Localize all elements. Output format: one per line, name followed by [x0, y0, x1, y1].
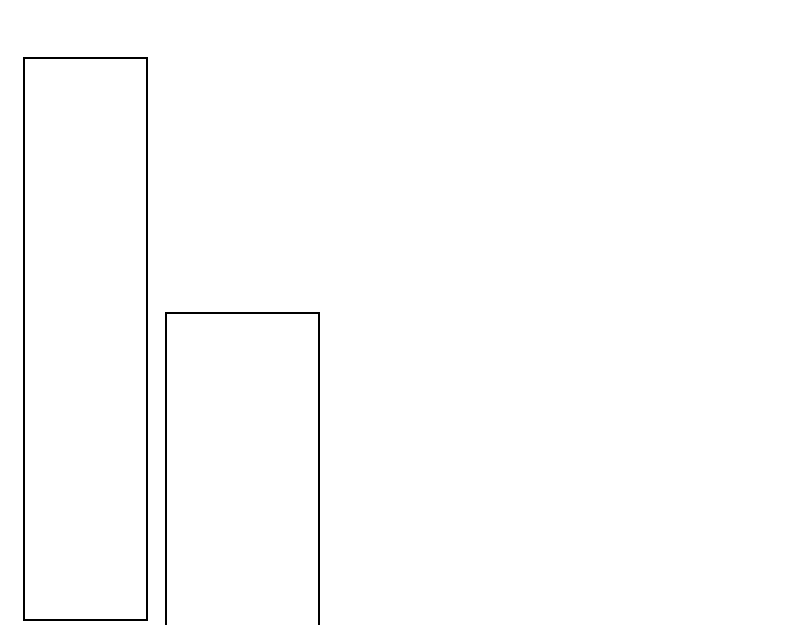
page-background: { "page": { "background_color": "#ffffff…	[0, 0, 800, 625]
bar-chart	[0, 0, 800, 625]
bar-1	[23, 57, 148, 621]
bar-2	[165, 312, 320, 625]
